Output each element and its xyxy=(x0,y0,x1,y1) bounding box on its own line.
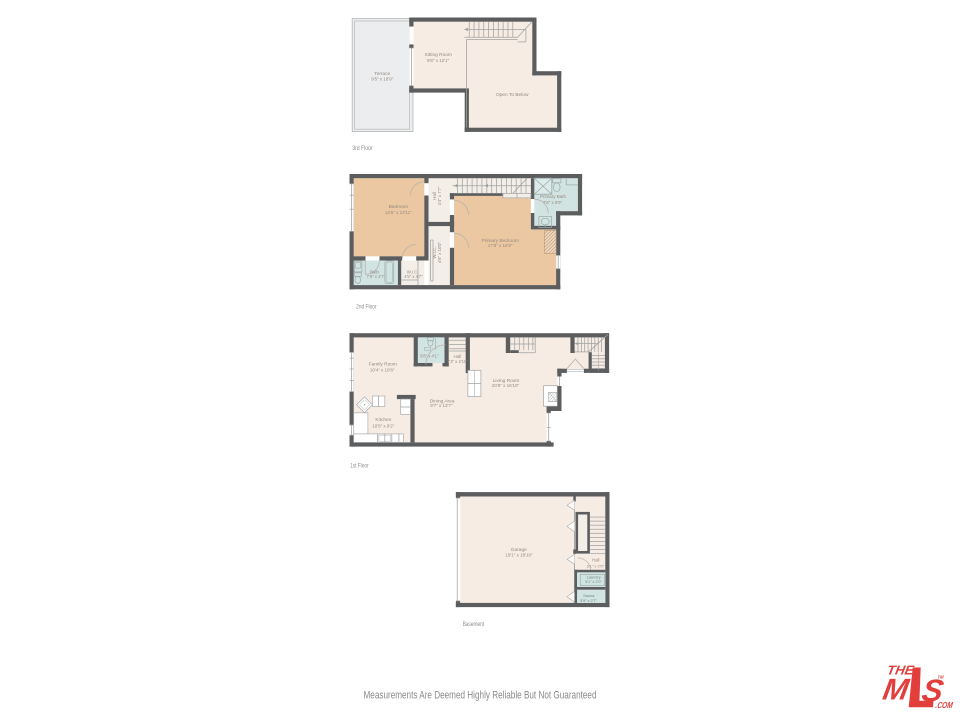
svg-text:17'8" x 15'9": 17'8" x 15'9" xyxy=(488,243,513,248)
svg-text:19'1" x 18'10": 19'1" x 18'10" xyxy=(505,553,533,558)
svg-text:5'8" x 4'1": 5'8" x 4'1" xyxy=(420,353,439,358)
svg-text:Measurements Are Deemed Highly: Measurements Are Deemed Highly Reliable … xyxy=(364,690,597,702)
svg-text:Kitchen: Kitchen xyxy=(375,417,391,423)
svg-text:3'1" x 2'0": 3'1" x 2'0" xyxy=(587,563,605,568)
svg-text:5'1" x 2'0": 5'1" x 2'0" xyxy=(585,580,602,584)
svg-text:5'9" x 2'7": 5'9" x 2'7" xyxy=(580,599,597,603)
svg-text:7'8" x 8'9": 7'8" x 8'9" xyxy=(543,200,563,205)
svg-text:.COM: .COM xyxy=(935,700,954,710)
svg-text:Sauna: Sauna xyxy=(583,593,595,598)
svg-text:2nd Floor: 2nd Floor xyxy=(356,304,377,310)
svg-text:Hall: Hall xyxy=(592,557,599,562)
svg-text:4'5" x 4'7": 4'5" x 4'7" xyxy=(404,274,423,279)
svg-text:7'9" x 4'7": 7'9" x 4'7" xyxy=(367,274,386,279)
svg-text:Open To Below: Open To Below xyxy=(496,92,529,98)
svg-text:3rd Floor: 3rd Floor xyxy=(352,146,373,152)
svg-text:4'4" x 7'7": 4'4" x 7'7" xyxy=(437,186,442,205)
svg-text:12'6" x 13'11": 12'6" x 13'11" xyxy=(385,210,412,215)
svg-text:20'8" x 16'10": 20'8" x 16'10" xyxy=(492,383,520,388)
svg-text:10'5" x 8'2": 10'5" x 8'2" xyxy=(372,423,395,428)
svg-text:Basement: Basement xyxy=(463,622,485,628)
svg-text:Bedroom: Bedroom xyxy=(389,204,408,210)
svg-text:W.I.C.: W.I.C. xyxy=(432,246,437,258)
svg-text:9'8" x 12'1": 9'8" x 12'1" xyxy=(427,58,450,63)
svg-text:10'4" x 10'8": 10'4" x 10'8" xyxy=(370,367,395,372)
svg-text:Hall: Hall xyxy=(432,192,437,200)
svg-text:7'2" x 2'10": 7'2" x 2'10" xyxy=(447,359,468,364)
svg-text:1st Floor: 1st Floor xyxy=(350,463,369,469)
svg-text:4'6" x 10'0": 4'6" x 10'0" xyxy=(437,241,442,263)
svg-text:9'7" x 13'7": 9'7" x 13'7" xyxy=(430,403,453,408)
svg-text:9'5" x 18'9": 9'5" x 18'9" xyxy=(371,77,394,82)
svg-text:Primary Bath: Primary Bath xyxy=(540,194,567,199)
